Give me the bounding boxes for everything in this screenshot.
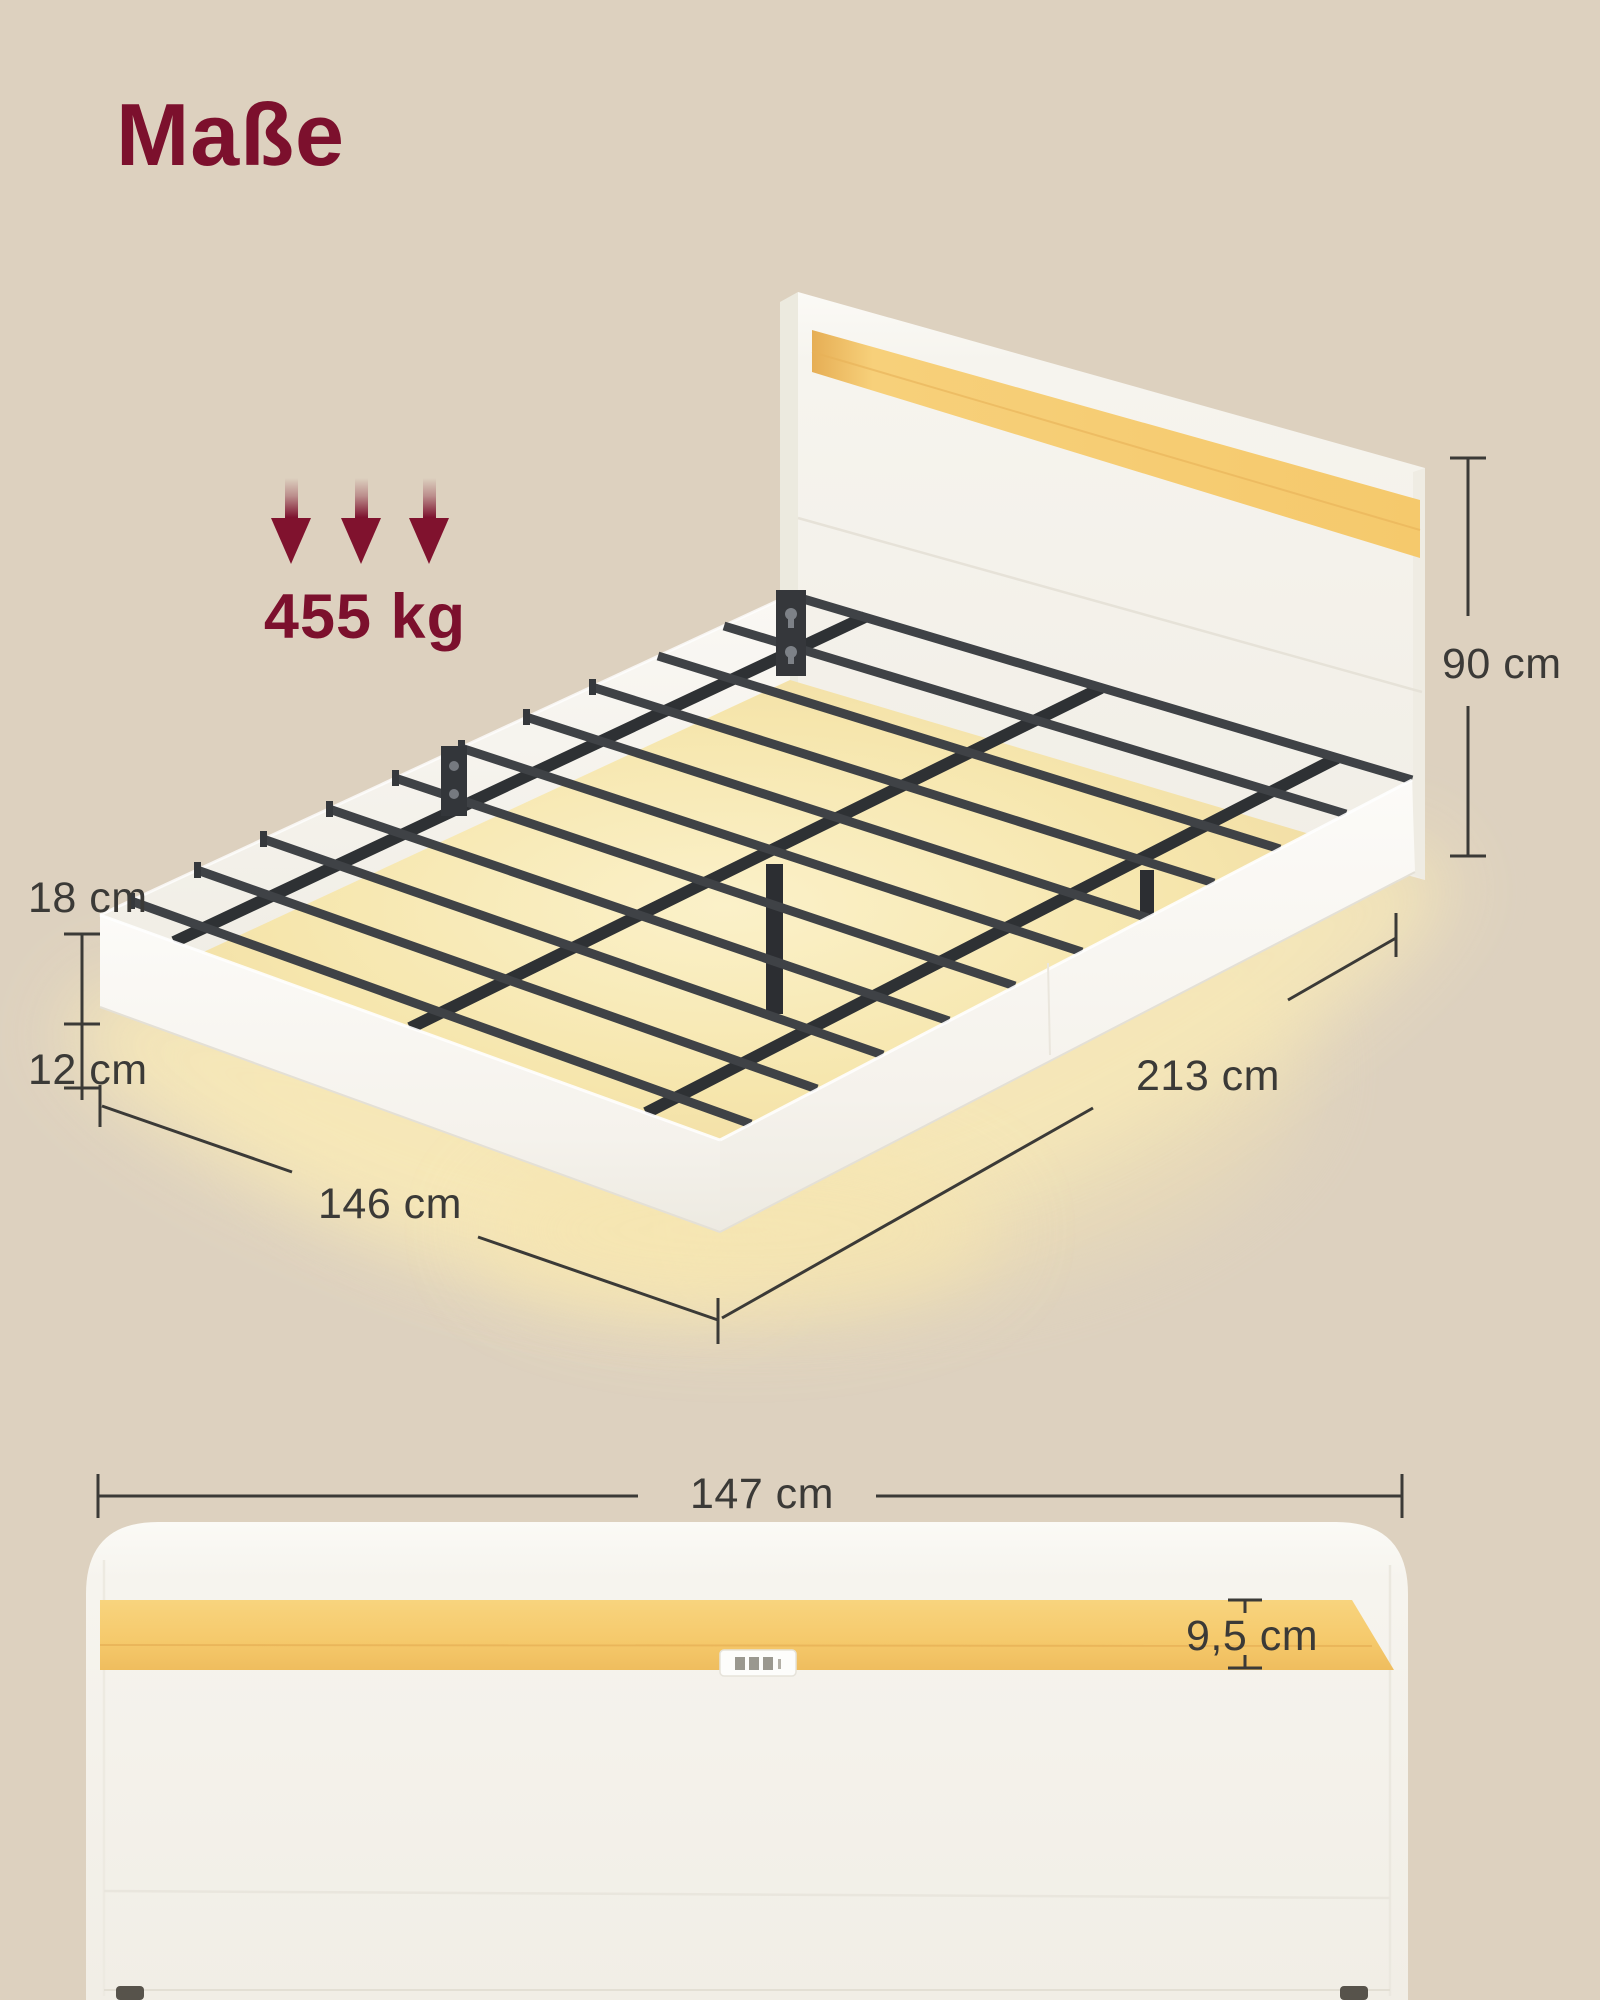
bed-illustration bbox=[0, 0, 1600, 2000]
load-capacity-label: 455 kg bbox=[215, 581, 515, 653]
headboard-foot bbox=[116, 1986, 144, 2000]
headboard-front-view bbox=[86, 1474, 1408, 2000]
page-title: Maße bbox=[116, 84, 345, 186]
dimension-label-led-recess: 9,5 cm bbox=[1186, 1612, 1318, 1661]
support-leg bbox=[766, 864, 783, 1014]
down-arrow-icon bbox=[271, 478, 311, 564]
down-arrow-icon bbox=[341, 478, 381, 564]
product-dimension-diagram: Maße 455 kg 18 cm 12 cm 146 cm 213 cm 90… bbox=[0, 0, 1600, 2000]
dimension-label-clearance: 12 cm bbox=[28, 1046, 148, 1095]
led-strip-shelf-line-front bbox=[100, 1645, 1372, 1646]
headboard-front-body bbox=[86, 1522, 1408, 2000]
dimension-label-frame-height: 18 cm bbox=[28, 874, 148, 923]
led-controller-module bbox=[720, 1650, 796, 1676]
mounting-bracket bbox=[441, 746, 467, 816]
dimension-label-width: 146 cm bbox=[300, 1180, 480, 1229]
down-arrow-icon bbox=[409, 478, 449, 564]
dimension-label-height: 90 cm bbox=[1442, 640, 1562, 689]
dimension-label-length: 213 cm bbox=[1118, 1052, 1298, 1101]
dimension-label-headboard-width: 147 cm bbox=[648, 1470, 876, 1519]
headboard-foot bbox=[1340, 1986, 1368, 2000]
mounting-bracket bbox=[776, 590, 806, 676]
